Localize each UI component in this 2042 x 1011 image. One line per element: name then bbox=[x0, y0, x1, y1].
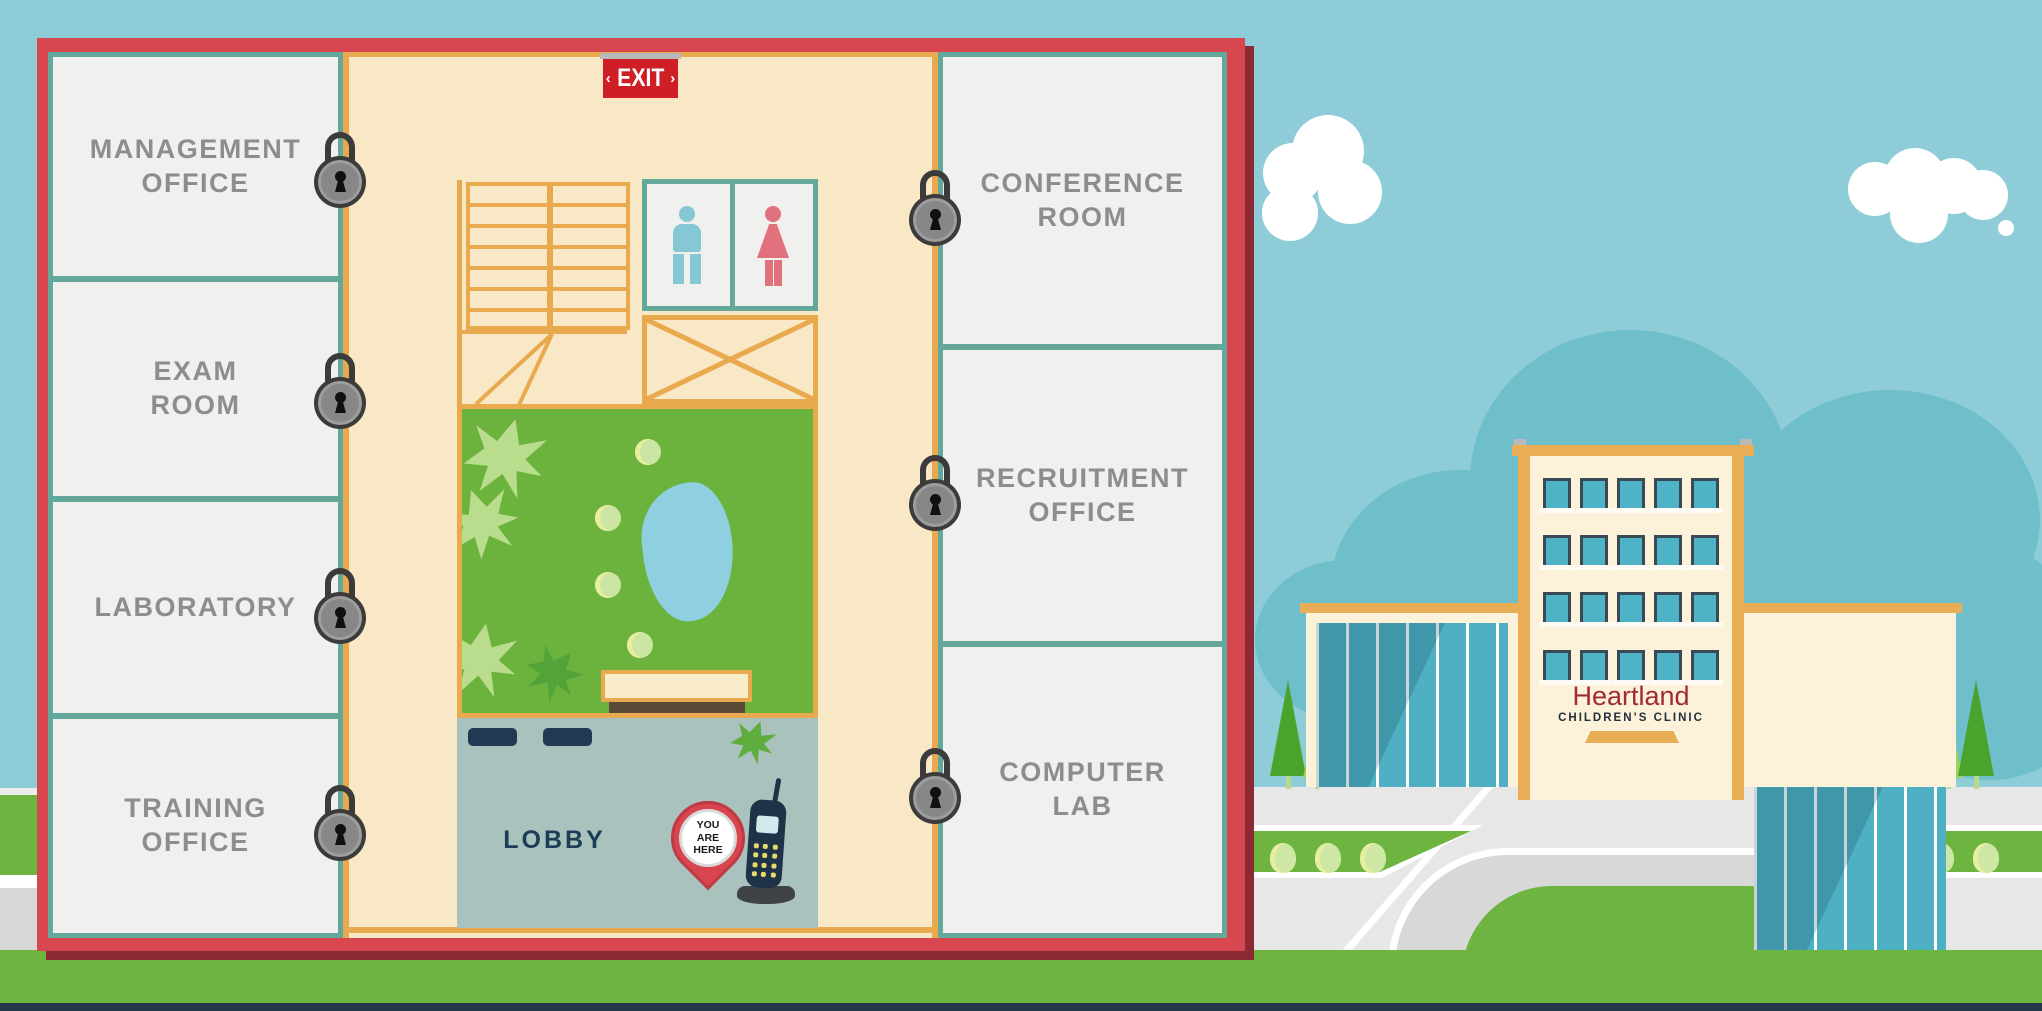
lock-icon-exam-room[interactable] bbox=[308, 353, 372, 431]
phone-key bbox=[762, 853, 767, 858]
left-rooms-column: MANAGEMENT OFFICE EXAM ROOM LABORATORY T… bbox=[48, 52, 343, 938]
lock-body bbox=[909, 772, 961, 824]
leaf-icon bbox=[725, 718, 781, 770]
you-are-here-pin: YOU ARE HERE bbox=[656, 786, 761, 891]
room-management-office[interactable]: MANAGEMENT OFFICE bbox=[53, 57, 338, 276]
stepping-stone bbox=[635, 439, 661, 465]
lock-body bbox=[314, 592, 366, 644]
room-label: RECRUITMENT OFFICE bbox=[976, 462, 1189, 530]
lobby-desk bbox=[468, 728, 517, 746]
phone-icon[interactable] bbox=[745, 799, 787, 889]
lobby: LOBBY YOU ARE HERE bbox=[457, 718, 818, 928]
female-restroom-icon bbox=[755, 206, 791, 286]
stepping-stone bbox=[627, 632, 653, 658]
leaf-icon bbox=[515, 635, 592, 712]
phone-screen bbox=[756, 815, 779, 833]
bench-base bbox=[609, 702, 745, 714]
stepping-stone bbox=[595, 505, 621, 531]
clinic-map-game: Heartland CHILDREN’S CLINIC ‹ EXIT › MAN… bbox=[0, 0, 2042, 1011]
pin-circle: YOU ARE HERE bbox=[679, 809, 737, 867]
restrooms bbox=[642, 179, 818, 311]
room-conference-room[interactable]: CONFERENCE ROOM bbox=[943, 57, 1222, 344]
stairs-landing bbox=[457, 330, 630, 408]
stairs-divider bbox=[547, 186, 553, 326]
elevator-x bbox=[647, 320, 813, 399]
exit-left-arrow-icon: ‹ bbox=[606, 70, 611, 87]
right-rooms-column: CONFERENCE ROOM RECRUITMENT OFFICE COMPU… bbox=[938, 52, 1227, 938]
lock-body bbox=[909, 194, 961, 246]
phone-key bbox=[771, 863, 776, 868]
phone-keypad bbox=[752, 843, 779, 879]
lock-body bbox=[314, 809, 366, 861]
male-restroom-icon bbox=[669, 206, 705, 286]
restroom-divider bbox=[730, 184, 735, 306]
pond bbox=[636, 479, 740, 626]
figure-leg bbox=[690, 254, 701, 284]
lock-body bbox=[314, 377, 366, 429]
stairs-icon bbox=[466, 182, 630, 330]
room-label: LABORATORY bbox=[95, 591, 297, 625]
room-training-office[interactable]: TRAINING OFFICE bbox=[53, 713, 338, 933]
room-recruitment-office[interactable]: RECRUITMENT OFFICE bbox=[943, 344, 1222, 641]
leaf-icon bbox=[457, 478, 528, 568]
room-laboratory[interactable]: LABORATORY bbox=[53, 496, 338, 713]
figure-leg bbox=[774, 260, 782, 286]
phone-base bbox=[737, 886, 795, 904]
courtyard-garden bbox=[457, 404, 818, 718]
room-label: EXAM ROOM bbox=[151, 355, 241, 423]
exit-right-arrow-icon: › bbox=[670, 70, 675, 87]
phone-key bbox=[762, 862, 767, 867]
leaf-icon bbox=[457, 617, 523, 704]
pin-text: YOU ARE HERE bbox=[693, 819, 722, 857]
phone-key bbox=[754, 843, 759, 848]
stepping-stone bbox=[595, 572, 621, 598]
figure-leg bbox=[765, 260, 773, 286]
phone-key bbox=[770, 872, 775, 877]
room-computer-lab[interactable]: COMPUTER LAB bbox=[943, 641, 1222, 933]
lock-icon-training-office[interactable] bbox=[308, 785, 372, 863]
room-label: COMPUTER LAB bbox=[999, 756, 1166, 824]
bench bbox=[601, 670, 752, 702]
phone-key bbox=[753, 852, 758, 857]
phone-key bbox=[752, 871, 757, 876]
room-label: TRAINING OFFICE bbox=[124, 792, 267, 860]
room-label: MANAGEMENT OFFICE bbox=[90, 133, 302, 201]
figure-head bbox=[765, 206, 781, 222]
exit-label: EXIT bbox=[617, 64, 664, 93]
lock-body bbox=[909, 479, 961, 531]
exit-sign[interactable]: ‹ EXIT › bbox=[603, 59, 678, 98]
elevator-shaft bbox=[642, 315, 818, 404]
lock-body bbox=[314, 156, 366, 208]
floor-map: ‹ EXIT › MANAGEMENT OFFICE EXAM ROOM LAB… bbox=[0, 0, 2042, 1011]
lock-icon-conference-room[interactable] bbox=[903, 170, 967, 248]
figure-leg bbox=[673, 254, 684, 284]
phone-key bbox=[763, 844, 768, 849]
figure-torso bbox=[673, 224, 701, 252]
phone-key bbox=[772, 844, 777, 849]
lock-icon-laboratory[interactable] bbox=[308, 568, 372, 646]
phone-key bbox=[761, 871, 766, 876]
figure-head bbox=[679, 206, 695, 222]
lobby-desk bbox=[543, 728, 592, 746]
lock-icon-recruitment-office[interactable] bbox=[903, 455, 967, 533]
phone-key bbox=[752, 862, 757, 867]
lock-icon-computer-lab[interactable] bbox=[903, 748, 967, 826]
figure-dress bbox=[757, 224, 789, 258]
lobby-label: LOBBY bbox=[467, 826, 642, 855]
lock-icon-management-office[interactable] bbox=[308, 132, 372, 210]
phone-key bbox=[772, 854, 777, 859]
room-label: CONFERENCE ROOM bbox=[980, 167, 1184, 235]
room-exam-room[interactable]: EXAM ROOM bbox=[53, 276, 338, 496]
